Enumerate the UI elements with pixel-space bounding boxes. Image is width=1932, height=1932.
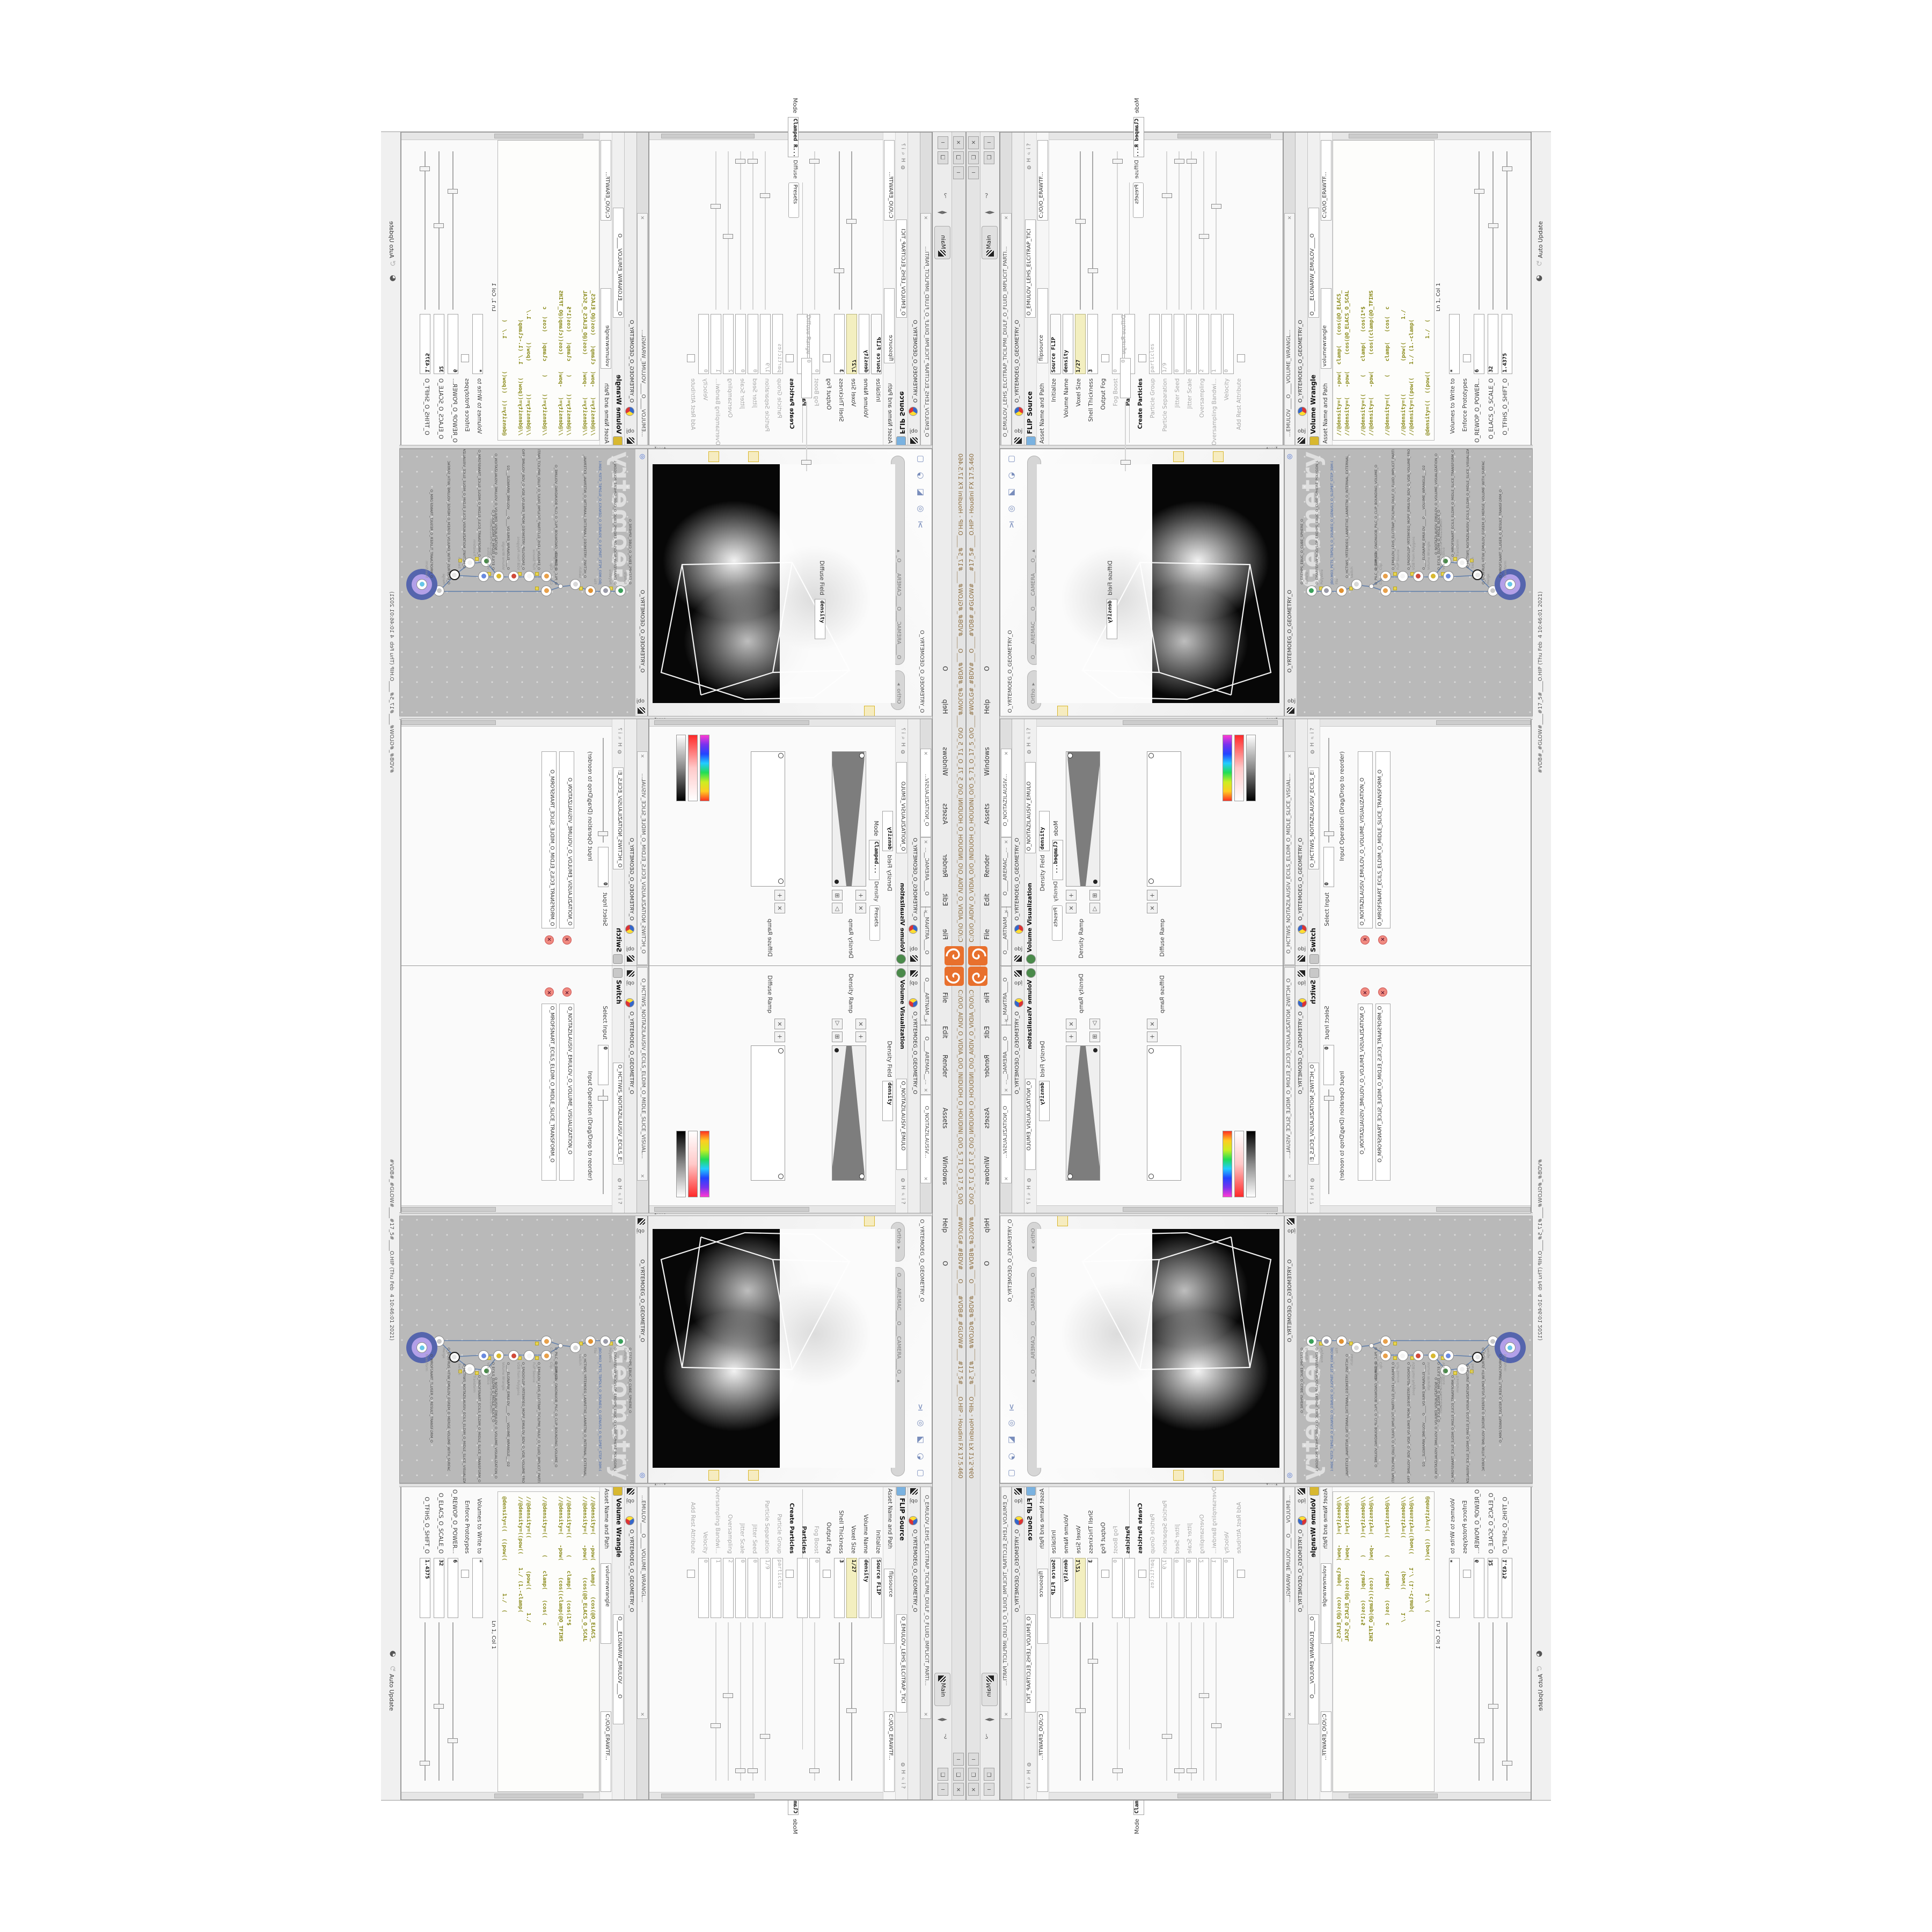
select-input-value[interactable]: 0: [1323, 1045, 1334, 1085]
viewport-tool-icon[interactable]: [748, 451, 759, 462]
viewport-tool-icon[interactable]: [801, 1471, 810, 1481]
node-circle[interactable]: [1321, 586, 1332, 596]
viewport-tool-icon[interactable]: [1240, 1471, 1249, 1481]
header-icons[interactable]: ⚙ H ⌕ i ?: [617, 1178, 623, 1204]
saturation-slider[interactable]: [1234, 1131, 1244, 1197]
scroll-thumb[interactable]: [494, 134, 583, 138]
param-checkbox[interactable]: [1101, 354, 1109, 362]
param-slider[interactable]: [1179, 151, 1180, 310]
node-circle[interactable]: [1472, 569, 1483, 580]
tab-close-icon[interactable]: ✕: [640, 1711, 645, 1716]
network-node[interactable]: File JBO.M03_PETS_TBPDLS_O_3SUNEG_O_GENU…: [1336, 1335, 1348, 1346]
breadcrumb-path[interactable]: O_YRTEMOEG_O_GEOMETRY_O: [1298, 1529, 1304, 1612]
select-input-slider[interactable]: [1328, 738, 1329, 843]
viewport-snap-icon[interactable]: [1084, 1217, 1094, 1226]
param-value-field[interactable]: 1/9: [760, 1558, 771, 1618]
flip-node-name-field[interactable]: O_EMULOV_LEHS_ELCITRAP_TICI: [1025, 219, 1036, 318]
param-slider[interactable]: [1506, 1622, 1507, 1781]
param-slider[interactable]: [1216, 151, 1217, 310]
viewport-snap-icon[interactable]: [1161, 706, 1171, 715]
ramp-marker-button[interactable]: △: [1089, 903, 1100, 913]
viewport-tool-icon[interactable]: [1057, 1471, 1067, 1481]
param-value-field[interactable]: Source FLIP: [871, 314, 882, 374]
ramp-key-end[interactable]: [778, 1048, 784, 1053]
network-node[interactable]: FLIP Source O_EMULOV_LEHS_ELCITRAP_TICIL…: [523, 1349, 535, 1361]
pane-arrows-icon[interactable]: ◄►: [938, 208, 947, 216]
network-node[interactable]: Clip O_PILC_O_CLIP_O2: [540, 586, 552, 597]
breadcrumb-context[interactable]: obj: [1014, 980, 1022, 986]
viewport-tool-icon[interactable]: [722, 451, 732, 461]
param-value-field[interactable]: particles: [772, 314, 783, 374]
node-circle[interactable]: [1306, 1336, 1317, 1346]
saturation-slider[interactable]: [688, 1131, 698, 1197]
param-value-field[interactable]: 0: [809, 1558, 820, 1618]
auto-update-selector[interactable]: Auto Update: [1538, 1674, 1544, 1711]
slider-handle[interactable]: [1502, 1761, 1512, 1766]
node-circle[interactable]: [464, 558, 475, 568]
flip-path-field[interactable]: C:/O/O_ERAWTF...: [884, 140, 895, 221]
breadcrumb-path[interactable]: O_YRTEMOEG_O_GEOMETRY_O: [1298, 1012, 1304, 1094]
viewport-tool-icon[interactable]: [1173, 1470, 1184, 1481]
breadcrumb-path[interactable]: O_YRTEMOEG_O_GEOMETRY_O: [912, 1012, 918, 1094]
density-presets-button[interactable]: Presets: [1052, 905, 1063, 941]
network-node[interactable]: Switch O_HCTIWS_YRTEMOEG_LANRETXE_LANRET…: [1351, 579, 1363, 591]
flip-asset-field[interactable]: flipsource: [884, 288, 895, 363]
param-checkbox[interactable]: [823, 1570, 831, 1578]
param-checkbox[interactable]: [461, 354, 469, 362]
node-circle[interactable]: [1428, 571, 1439, 582]
switch-pane-tab[interactable]: ✕ O_HCTIWS_NOITAZILAUSIV_ECILS_ELDIM_O_M…: [1284, 751, 1295, 965]
breadcrumb-context[interactable]: obj: [910, 1498, 918, 1504]
viewport-snap-icon[interactable]: [1174, 1217, 1184, 1226]
param-slider[interactable]: [839, 151, 840, 310]
tab-close-icon[interactable]: ✕: [1287, 216, 1292, 221]
param-checkbox[interactable]: [1237, 354, 1245, 362]
ramp-add-button[interactable]: 🞣: [774, 890, 785, 901]
diffuse-field-value[interactable]: density: [1107, 599, 1117, 639]
slider-handle[interactable]: [834, 1659, 844, 1664]
viewport-snap-icon[interactable]: [1057, 1216, 1068, 1226]
pane-splitter[interactable]: ▴····▾: [1000, 445, 1533, 449]
ramp-key-start[interactable]: [778, 753, 784, 758]
param-value-field[interactable]: 1/27: [1075, 314, 1086, 374]
menu-item[interactable]: Render: [984, 1053, 991, 1078]
viewport-tool-icon[interactable]: [762, 1471, 772, 1481]
slider-handle[interactable]: [735, 159, 745, 164]
select-input-value[interactable]: 0: [598, 1045, 609, 1085]
network-node[interactable]: Transform O_MROFSNART_TLUSER_O_RESULT_TR…: [1505, 579, 1517, 591]
viewport-snap-icon[interactable]: [1187, 706, 1197, 715]
scroll-thumb[interactable]: [401, 1207, 496, 1212]
breadcrumb-path[interactable]: O_YRTEMOEG_O_GEOMETRY_O: [628, 1012, 634, 1094]
flip-pane-tab[interactable]: ✕ O_EMULOV_LEHS_ELCITRAP_TICILPMI_DIULF_…: [920, 213, 931, 448]
param-value-field[interactable]: 1/27: [846, 314, 857, 374]
flip-node-name-field[interactable]: O_EMULOV_LEHS_ELCITRAP_TICI: [1025, 1614, 1036, 1713]
node-circle[interactable]: [558, 584, 563, 589]
scroll-thumb[interactable]: [1349, 134, 1438, 138]
node-circle[interactable]: [1443, 1350, 1454, 1361]
param-value-field[interactable]: [797, 1558, 808, 1618]
mode1-dropdown[interactable]: Clamped...: [1052, 840, 1063, 880]
menu-item[interactable]: Assets: [941, 1106, 948, 1129]
remove-input-button[interactable]: ✕: [562, 935, 572, 945]
pane-min-button[interactable]: ─: [938, 136, 948, 149]
minimize-button[interactable]: ─: [953, 1753, 964, 1766]
wrangle-path-field[interactable]: C:/O/O_ERAWTF...: [1321, 140, 1331, 221]
viewport-breadcrumb[interactable]: O_YRTEMOEG_O_GEOMETRY_O: [919, 630, 925, 713]
header-icons[interactable]: ⚙ H ⌕ i ?: [900, 1178, 906, 1204]
network-node[interactable]: PolyWire O_EMARFERIW_NOGYLOP_EREHPS_EBUC…: [599, 586, 611, 597]
vex-code-editor[interactable]: //@density=( -pow( clamp( (cos(@O_ELACS_…: [497, 140, 599, 441]
input-name-field[interactable]: O_MROFSNART_ECILS_ELDIM_O_MIDLE_SLICE_TR…: [1375, 1004, 1391, 1181]
param-value-field[interactable]: Source FLIP: [1050, 314, 1061, 374]
param-slider[interactable]: [765, 151, 766, 310]
flip-asset-field[interactable]: flipsource: [884, 1569, 895, 1644]
param-slider[interactable]: [765, 1622, 766, 1781]
param-value-field[interactable]: density: [1063, 314, 1073, 374]
viewport-display-icon[interactable]: ◔: [914, 1451, 926, 1463]
wrangle-asset-field[interactable]: volumewrangle: [601, 1563, 611, 1644]
viewport-snap-icon[interactable]: [697, 706, 706, 715]
param-checkbox[interactable]: [1101, 1570, 1109, 1578]
viewport-snap-icon[interactable]: [1226, 1217, 1235, 1226]
viz-scrollbar[interactable]: [1037, 1205, 1283, 1213]
wrangle-scrollbar[interactable]: [1333, 133, 1531, 140]
density-field-value[interactable]: density: [882, 1081, 893, 1121]
scroll-thumb[interactable]: [654, 1207, 809, 1212]
flip-pane-tab[interactable]: ✕ O_EMULOV_LEHS_ELCITRAP_TICILPMI_DIULF_…: [1001, 1484, 1012, 1719]
menu-item[interactable]: Help: [984, 699, 991, 715]
slider-handle[interactable]: [448, 189, 458, 194]
menu-item[interactable]: File: [984, 991, 991, 1003]
node-circle[interactable]: [1306, 586, 1317, 596]
param-checkbox[interactable]: [687, 354, 695, 362]
ramp-del-button[interactable]: ✕: [1147, 1019, 1158, 1029]
breadcrumb-context[interactable]: obj: [636, 698, 645, 704]
param-value-field[interactable]: 3: [834, 1558, 845, 1618]
ramp-key-end[interactable]: [1148, 1048, 1154, 1053]
network-node[interactable]: VDB from Polygons O_SNOGYLOP_YRTEMOEG_MO…: [1413, 1349, 1425, 1361]
desktop-selector-main[interactable]: Main: [982, 1673, 998, 1706]
switch-node-name-field[interactable]: O_HCTIWS_NOITAZILAUSIV_ECILS_EL: [1308, 1063, 1319, 1165]
viewport-snap-icon[interactable]: [761, 706, 771, 715]
viewport-snap-icon[interactable]: [1213, 1217, 1223, 1226]
node-circle[interactable]: [1413, 1350, 1424, 1361]
slider-handle[interactable]: [598, 1096, 608, 1101]
pig-head-icon[interactable]: ◕: [390, 274, 396, 282]
breadcrumb-context[interactable]: obj: [910, 428, 918, 434]
param-checkbox[interactable]: [786, 354, 794, 362]
network-node[interactable]: Clip O_PILC_O_CLIP_O2: [1380, 1335, 1392, 1346]
diffuse-field-value[interactable]: density: [815, 599, 825, 639]
network-node[interactable]: Volume Wrangle O____ELGNARW_EMULOV____O_…: [1428, 1349, 1440, 1361]
viewport-tool-icon[interactable]: [1135, 451, 1144, 461]
viewport-tool-icon[interactable]: [826, 451, 836, 461]
menu-item[interactable]: Render: [941, 1053, 948, 1078]
breadcrumb-context[interactable]: obj: [626, 1498, 634, 1504]
ramp-expand-button[interactable]: ⊞: [1089, 1031, 1100, 1042]
switch-node-name-field[interactable]: O_HCTIWS_NOITAZILAUSIV_ECILS_EL: [1308, 767, 1319, 869]
slider-handle[interactable]: [1113, 159, 1123, 164]
viewport-display-icon[interactable]: ⊼: [1006, 519, 1018, 531]
viz-pane-tab[interactable]: ✕ O____AREMAC__...: [1001, 837, 1012, 907]
param-slider[interactable]: [425, 151, 426, 310]
menu-item[interactable]: Help: [984, 1217, 991, 1233]
network-node[interactable]: PolyWire O_EMARFERIW_NOGYLOP_EREHPS_EBUC…: [1321, 586, 1333, 597]
value-slider[interactable]: [676, 1131, 686, 1197]
network-target-icon[interactable]: ◎: [640, 1472, 645, 1480]
switch-node-name-field[interactable]: O_HCTIWS_NOITAZILAUSIV_ECILS_EL: [613, 1063, 624, 1165]
viewport-snap-icon[interactable]: [1213, 706, 1223, 715]
viewport-snap-icon[interactable]: [1226, 706, 1235, 715]
viewport-tool-icon[interactable]: [1200, 1471, 1210, 1481]
network-node[interactable]: Switch O_HCTIWS_YRTEMOEG_LANRETXE_LANRET…: [1351, 1341, 1363, 1353]
slider-handle[interactable]: [735, 1768, 745, 1773]
viewport-snap-icon[interactable]: [864, 1216, 875, 1226]
viewport-tool-icon[interactable]: [1147, 1471, 1157, 1481]
param-value-field[interactable]: 32: [434, 314, 444, 374]
param-value-field[interactable]: 1/9: [1161, 1558, 1172, 1618]
diffuse-presets-button[interactable]: Presets: [1133, 182, 1144, 218]
pane-min-button[interactable]: ─: [984, 136, 994, 149]
scroll-thumb[interactable]: [1436, 1207, 1531, 1212]
close-button[interactable]: ✕: [953, 136, 964, 149]
tab-close-icon[interactable]: ✕: [640, 216, 645, 221]
flip-scrollbar[interactable]: [649, 1792, 883, 1799]
node-circle[interactable]: [1428, 1350, 1439, 1361]
param-value-field[interactable]: 0: [748, 314, 758, 374]
param-value-field[interactable]: 2: [1198, 1558, 1209, 1618]
ramp-add-button[interactable]: 🞣: [855, 890, 866, 901]
slider-handle[interactable]: [1162, 1734, 1172, 1739]
slider-handle[interactable]: [1174, 1768, 1184, 1773]
viewport-tool-icon[interactable]: [814, 1471, 823, 1481]
param-value-field[interactable]: 1.4375: [420, 314, 430, 374]
breadcrumb-context[interactable]: obj: [1298, 980, 1306, 986]
value-slider[interactable]: [1246, 1131, 1256, 1197]
header-icons[interactable]: ⚙ H ⌕ i ?: [1310, 1178, 1316, 1204]
param-value-field[interactable]: 0: [1223, 314, 1234, 374]
param-slider[interactable]: [1117, 151, 1118, 310]
network-node[interactable]: Volume Slice O_ECILS_ELDIM_O_MIDLE_SLICE…: [1443, 1349, 1455, 1361]
param-slider[interactable]: [728, 1622, 729, 1781]
network-target-icon[interactable]: ◎: [1287, 452, 1292, 460]
vex-code-editor[interactable]: //@density=( -pow( clamp( (cos(@O_ELACS_…: [1333, 140, 1435, 441]
diffuse-ramp-widget[interactable]: [751, 751, 785, 887]
ramp-key-start[interactable]: [1067, 753, 1073, 758]
viewport-tool-icon[interactable]: [1096, 451, 1106, 461]
param-value-field[interactable]: 1/27: [1075, 1558, 1086, 1618]
ramp-del-button[interactable]: ✕: [774, 903, 785, 913]
viewport-snap-icon[interactable]: [1071, 1217, 1081, 1226]
param-value-field[interactable]: 1: [711, 1558, 721, 1618]
viewport-tool-icon[interactable]: [814, 451, 823, 461]
viewport-snap-icon[interactable]: [1187, 1217, 1197, 1226]
breadcrumb-context[interactable]: obj: [1014, 1498, 1022, 1504]
viewport-display-icon[interactable]: ◪: [1006, 1435, 1018, 1446]
param-slider[interactable]: [814, 1622, 815, 1781]
param-value-field[interactable]: 2: [1198, 314, 1209, 374]
density-ramp-widget[interactable]: [832, 751, 866, 887]
tab-close-icon[interactable]: ✕: [924, 751, 928, 757]
select-input-slider[interactable]: [1328, 1089, 1329, 1194]
wrangle-asset-field[interactable]: volumewrangle: [601, 288, 611, 369]
ramp-del-button[interactable]: ✕: [774, 1019, 785, 1029]
menu-item[interactable]: Render: [984, 854, 991, 879]
slider-handle[interactable]: [1324, 831, 1334, 836]
breadcrumb-context[interactable]: obj: [636, 1228, 645, 1234]
viewport-tool-icon[interactable]: [1227, 451, 1236, 461]
viewport-tool-icon[interactable]: [1147, 451, 1157, 461]
pane-restore-button[interactable]: ❐: [938, 1768, 948, 1781]
node-circle[interactable]: [570, 579, 581, 590]
param-slider[interactable]: [752, 151, 753, 310]
recook-icon[interactable]: ↻: [390, 260, 396, 268]
viewport-tool-icon[interactable]: [852, 451, 862, 461]
viewport-snap-icon[interactable]: [825, 1217, 835, 1226]
header-icons[interactable]: ⚙ H ⌕ i ?: [900, 728, 906, 754]
viewport-snap-icon[interactable]: [1136, 1217, 1145, 1226]
viewport-snap-icon[interactable]: [735, 1217, 745, 1226]
viewport-snap-icon[interactable]: [1123, 1217, 1132, 1226]
viewport-tool-icon[interactable]: [1109, 1471, 1118, 1481]
breadcrumb-path[interactable]: O_YRTEMOEG_O_GEOMETRY_O: [1015, 838, 1021, 920]
flip-node-name-field[interactable]: O_EMULOV_LEHS_ELCITRAP_TICI: [896, 1614, 907, 1713]
minimize-button[interactable]: ─: [968, 1753, 979, 1766]
node-circle[interactable]: [1380, 586, 1391, 596]
viz-scrollbar[interactable]: [649, 719, 895, 727]
param-slider[interactable]: [1203, 1622, 1204, 1781]
viewport-tool-icon[interactable]: [683, 1471, 692, 1481]
help-icon[interactable]: ?: [985, 1732, 988, 1740]
remove-input-button[interactable]: ✕: [545, 987, 554, 997]
viz-pane-tab[interactable]: ✕ O____AREMAC__...: [920, 837, 931, 907]
flip-path-field[interactable]: C:/O/O_ERAWTF...: [1037, 1711, 1048, 1792]
ramp-key-start[interactable]: [1148, 1174, 1154, 1179]
viewport-snap-icon[interactable]: [787, 1217, 796, 1226]
param-slider[interactable]: [1080, 1622, 1081, 1781]
saturation-slider[interactable]: [688, 735, 698, 801]
param-value-field[interactable]: 1/9: [760, 314, 771, 374]
param-value-field[interactable]: 1: [1211, 1558, 1221, 1618]
pane-splitter[interactable]: ▴····▾: [399, 1483, 932, 1487]
viewport-snap-icon[interactable]: [1200, 706, 1210, 715]
network-node[interactable]: FLIP Source O_EMULOV_LEHS_ELCITRAP_TICIL…: [1397, 1349, 1409, 1361]
auto-update-selector[interactable]: Auto Update: [388, 221, 394, 258]
slider-handle[interactable]: [1502, 166, 1512, 171]
flip-asset-field[interactable]: flipsource: [1037, 1569, 1048, 1644]
param-slider[interactable]: [1179, 1622, 1180, 1781]
param-value-field[interactable]: particles: [1149, 314, 1160, 374]
viz-pane-tab[interactable]: ✕ O____ARTNAM__...: [920, 907, 931, 966]
network-node[interactable]: Volume Slice O_ECILS_ELDIM_O_MIDLE_SLICE…: [477, 1349, 489, 1361]
scroll-thumb[interactable]: [661, 134, 755, 138]
hue-slider[interactable]: [700, 735, 709, 801]
ramp-key-end[interactable]: [778, 879, 784, 884]
diffuse-ramp-widget[interactable]: [751, 1045, 785, 1181]
viewport-snap-icon[interactable]: [1148, 1217, 1158, 1226]
menu-item[interactable]: Render: [941, 854, 948, 879]
viewport-display-icon[interactable]: ▢: [914, 452, 926, 464]
param-slider[interactable]: [1479, 151, 1480, 310]
param-value-field[interactable]: density: [859, 314, 869, 374]
viewport-tool-icon[interactable]: [826, 1471, 836, 1481]
select-input-slider[interactable]: [603, 738, 604, 843]
input-name-field[interactable]: O_MROFSNART_ECILS_ELDIM_O_MIDLE_SLICE_TR…: [541, 751, 557, 928]
viewport-snap-icon[interactable]: [761, 1217, 771, 1226]
node-circle[interactable]: [615, 1336, 626, 1346]
param-value-field[interactable]: 0: [698, 314, 709, 374]
header-icons[interactable]: ⚙ H ⌕ i ?: [900, 143, 906, 170]
viewport-tool-icon[interactable]: [683, 451, 692, 461]
flip-pane-tab[interactable]: ✕ O_EMULOV_LEHS_ELCITRAP_TICILPMI_DIULF_…: [920, 1484, 931, 1719]
wrangle-asset-field[interactable]: volumewrangle: [1321, 288, 1331, 369]
pane-restore-button[interactable]: ❐: [938, 151, 948, 164]
input-name-field[interactable]: O_NOITAZILAUSIV_EMULOV_O_VOLUME_VISUALIZ…: [1358, 1004, 1373, 1181]
param-value-field[interactable]: 1.4375: [1502, 314, 1512, 374]
viewport-tool-icon[interactable]: [708, 1470, 719, 1481]
remove-input-button[interactable]: ✕: [1378, 935, 1387, 945]
viewport-snap-icon[interactable]: [851, 706, 861, 715]
viz-pane-tab[interactable]: ✕ O____ARTNAM__...: [1001, 907, 1012, 966]
node-circle[interactable]: [570, 1342, 581, 1353]
network-node[interactable]: Volume Wrangle O____ELGNARW_EMULOV____O_…: [492, 1349, 504, 1361]
viewport-tool-icon[interactable]: [852, 1471, 862, 1481]
viewport-snap-icon[interactable]: [878, 1217, 888, 1226]
menu-item[interactable]: Edit: [984, 894, 991, 908]
menu-item[interactable]: Windows: [941, 1154, 948, 1185]
viewport-tool-icon[interactable]: [775, 1471, 785, 1481]
param-value-field[interactable]: 32: [434, 1558, 444, 1618]
breadcrumb-context[interactable]: obj: [1298, 946, 1306, 952]
switch-scrollbar[interactable]: [1320, 719, 1531, 727]
density-ramp-widget[interactable]: [832, 1045, 866, 1181]
breadcrumb-context[interactable]: obj: [626, 946, 634, 952]
node-circle[interactable]: [508, 571, 519, 582]
ramp-add-button[interactable]: 🞣: [1147, 890, 1158, 901]
viewport-tool-icon[interactable]: [1083, 451, 1093, 461]
param-slider[interactable]: [1492, 1622, 1494, 1781]
slider-handle[interactable]: [801, 460, 811, 465]
viewport-snap-icon[interactable]: [1174, 706, 1184, 715]
node-circle[interactable]: [508, 1350, 519, 1361]
tab-close-icon[interactable]: ✕: [924, 1087, 928, 1092]
ramp-key-start[interactable]: [778, 1174, 784, 1179]
node-circle[interactable]: [615, 586, 626, 596]
breadcrumb-context[interactable]: obj: [1298, 1498, 1306, 1504]
tab-close-icon[interactable]: ✕: [1287, 1173, 1292, 1178]
param-value-field[interactable]: density: [1063, 1558, 1073, 1618]
param-value-field[interactable]: [1124, 1558, 1135, 1618]
breadcrumb-context[interactable]: obj: [1287, 698, 1296, 704]
network-canvas[interactable]: Geometry: [1297, 1214, 1532, 1483]
menu-item[interactable]: Edit: [941, 1024, 948, 1038]
menu-item[interactable]: File: [984, 929, 991, 941]
param-value-field[interactable]: 0: [1112, 1558, 1123, 1618]
scroll-thumb[interactable]: [1177, 1794, 1271, 1798]
node-circle[interactable]: [1505, 579, 1516, 590]
switch-pane-tab[interactable]: ✕ O_HCTIWS_NOITAZILAUSIV_ECILS_ELDIM_O_M…: [637, 967, 648, 1181]
viewport-tool-icon[interactable]: [1070, 1471, 1080, 1481]
param-value-field[interactable]: 3: [1087, 314, 1098, 374]
viewport-tool-icon[interactable]: [1240, 451, 1249, 461]
minimize-button[interactable]: ─: [953, 166, 964, 179]
viewport-display-icon[interactable]: ▢: [1006, 452, 1018, 464]
menu-item[interactable]: Edit: [984, 1024, 991, 1038]
value-slider[interactable]: [676, 735, 686, 801]
viewport-display-icon[interactable]: ◪: [1006, 486, 1018, 497]
breadcrumb-path[interactable]: O_YRTEMOEG_O_GEOMETRY_O: [1015, 320, 1021, 402]
